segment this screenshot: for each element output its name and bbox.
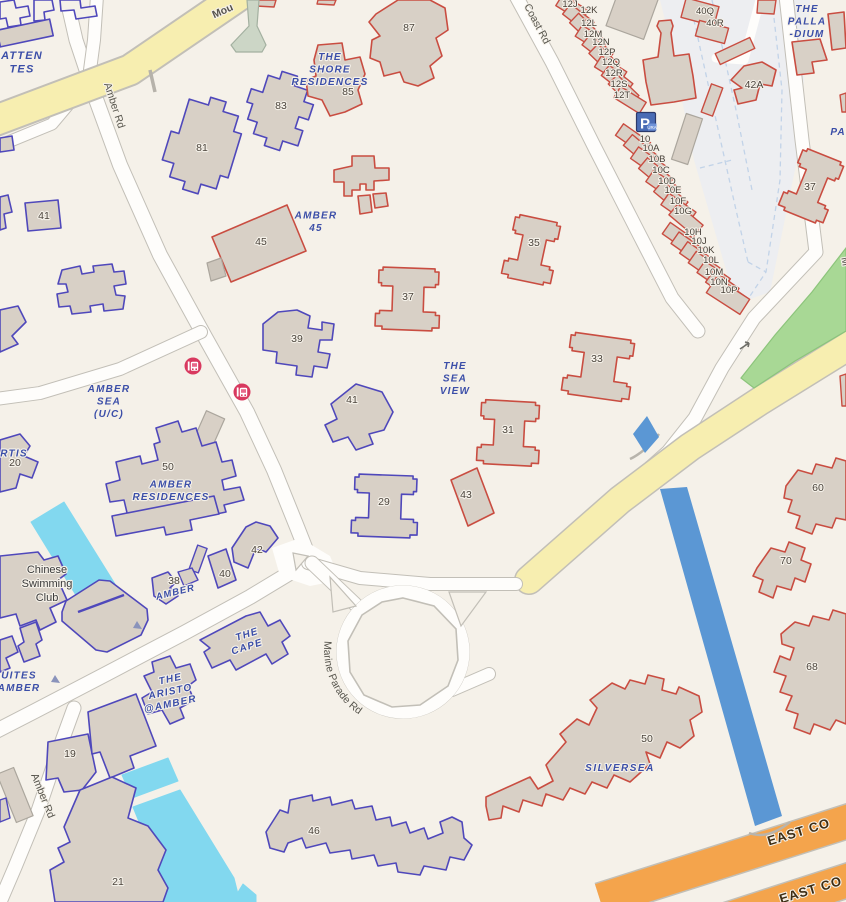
svg-text:URA: URA [647,125,657,130]
svg-text:20: 20 [9,457,21,469]
svg-text:Swimming: Swimming [22,578,73,590]
svg-text:12K: 12K [581,5,599,16]
svg-text:AMBER: AMBER [0,683,40,694]
svg-text:12R: 12R [605,68,623,79]
svg-text:THE: THE [318,52,342,63]
svg-text:Chinese: Chinese [27,564,67,576]
svg-text:29: 29 [378,496,390,508]
svg-text:19: 19 [64,748,76,760]
svg-text:TES: TES [10,64,35,76]
svg-text:40Q: 40Q [696,6,714,17]
svg-text:ATTEN: ATTEN [0,50,43,62]
svg-text:45: 45 [308,223,323,234]
svg-text:81: 81 [196,142,208,154]
svg-text:70: 70 [780,555,792,567]
svg-text:12T: 12T [614,90,631,101]
svg-text:RESIDENCES: RESIDENCES [291,77,368,88]
svg-text:SEA: SEA [443,374,467,385]
svg-text:10E: 10E [665,185,682,196]
svg-text:37: 37 [804,181,816,193]
svg-text:43: 43 [460,489,472,501]
svg-text:85: 85 [342,86,354,98]
svg-text:12J: 12J [562,0,578,10]
svg-text:83: 83 [275,100,287,112]
svg-text:10P: 10P [721,285,738,296]
svg-text:RESIDENCES: RESIDENCES [132,492,209,503]
svg-text:46: 46 [308,825,320,837]
svg-text:AMBER: AMBER [294,210,338,221]
svg-text:12L: 12L [581,18,597,29]
svg-text:38: 38 [168,575,180,587]
svg-text:12Q: 12Q [602,57,620,68]
svg-text:31: 31 [502,424,514,436]
svg-text:SEA: SEA [97,397,121,408]
svg-text:Club: Club [36,592,59,604]
svg-text:60: 60 [812,482,824,494]
svg-text:SILVERSEA: SILVERSEA [585,763,655,774]
svg-text:12S: 12S [611,79,628,90]
svg-text:PALLA: PALLA [788,17,827,28]
svg-text:21: 21 [112,876,124,888]
svg-text:-DIUM: -DIUM [790,29,825,40]
svg-text:10A: 10A [643,143,661,154]
svg-text:SHORE: SHORE [309,65,351,76]
svg-text:50: 50 [641,733,653,745]
svg-text:AMBER: AMBER [149,479,193,490]
svg-text:42: 42 [251,544,263,556]
svg-text:10L: 10L [703,255,719,266]
svg-text:AMBER: AMBER [87,384,131,395]
svg-text:50: 50 [162,461,174,473]
svg-text:39: 39 [291,333,303,345]
svg-text:UITES: UITES [1,670,36,681]
svg-text:42A: 42A [745,79,764,91]
svg-text:41: 41 [346,394,358,406]
svg-text:PA: PA [830,127,845,138]
svg-text:THE: THE [443,361,467,372]
svg-text:35: 35 [528,237,540,249]
svg-text:(U/C): (U/C) [94,409,124,420]
svg-text:VIEW: VIEW [440,386,471,397]
svg-text:41: 41 [38,210,50,222]
svg-text:40: 40 [219,568,231,580]
svg-text:40R: 40R [706,18,724,29]
svg-text:10G: 10G [674,206,692,217]
svg-text:68: 68 [806,661,818,673]
svg-text:45: 45 [255,236,267,248]
svg-text:10C: 10C [652,165,670,176]
svg-text:33: 33 [591,353,603,365]
svg-text:87: 87 [403,22,415,34]
svg-text:THE: THE [795,4,819,15]
svg-text:10B: 10B [649,154,666,165]
svg-text:37: 37 [402,291,414,303]
